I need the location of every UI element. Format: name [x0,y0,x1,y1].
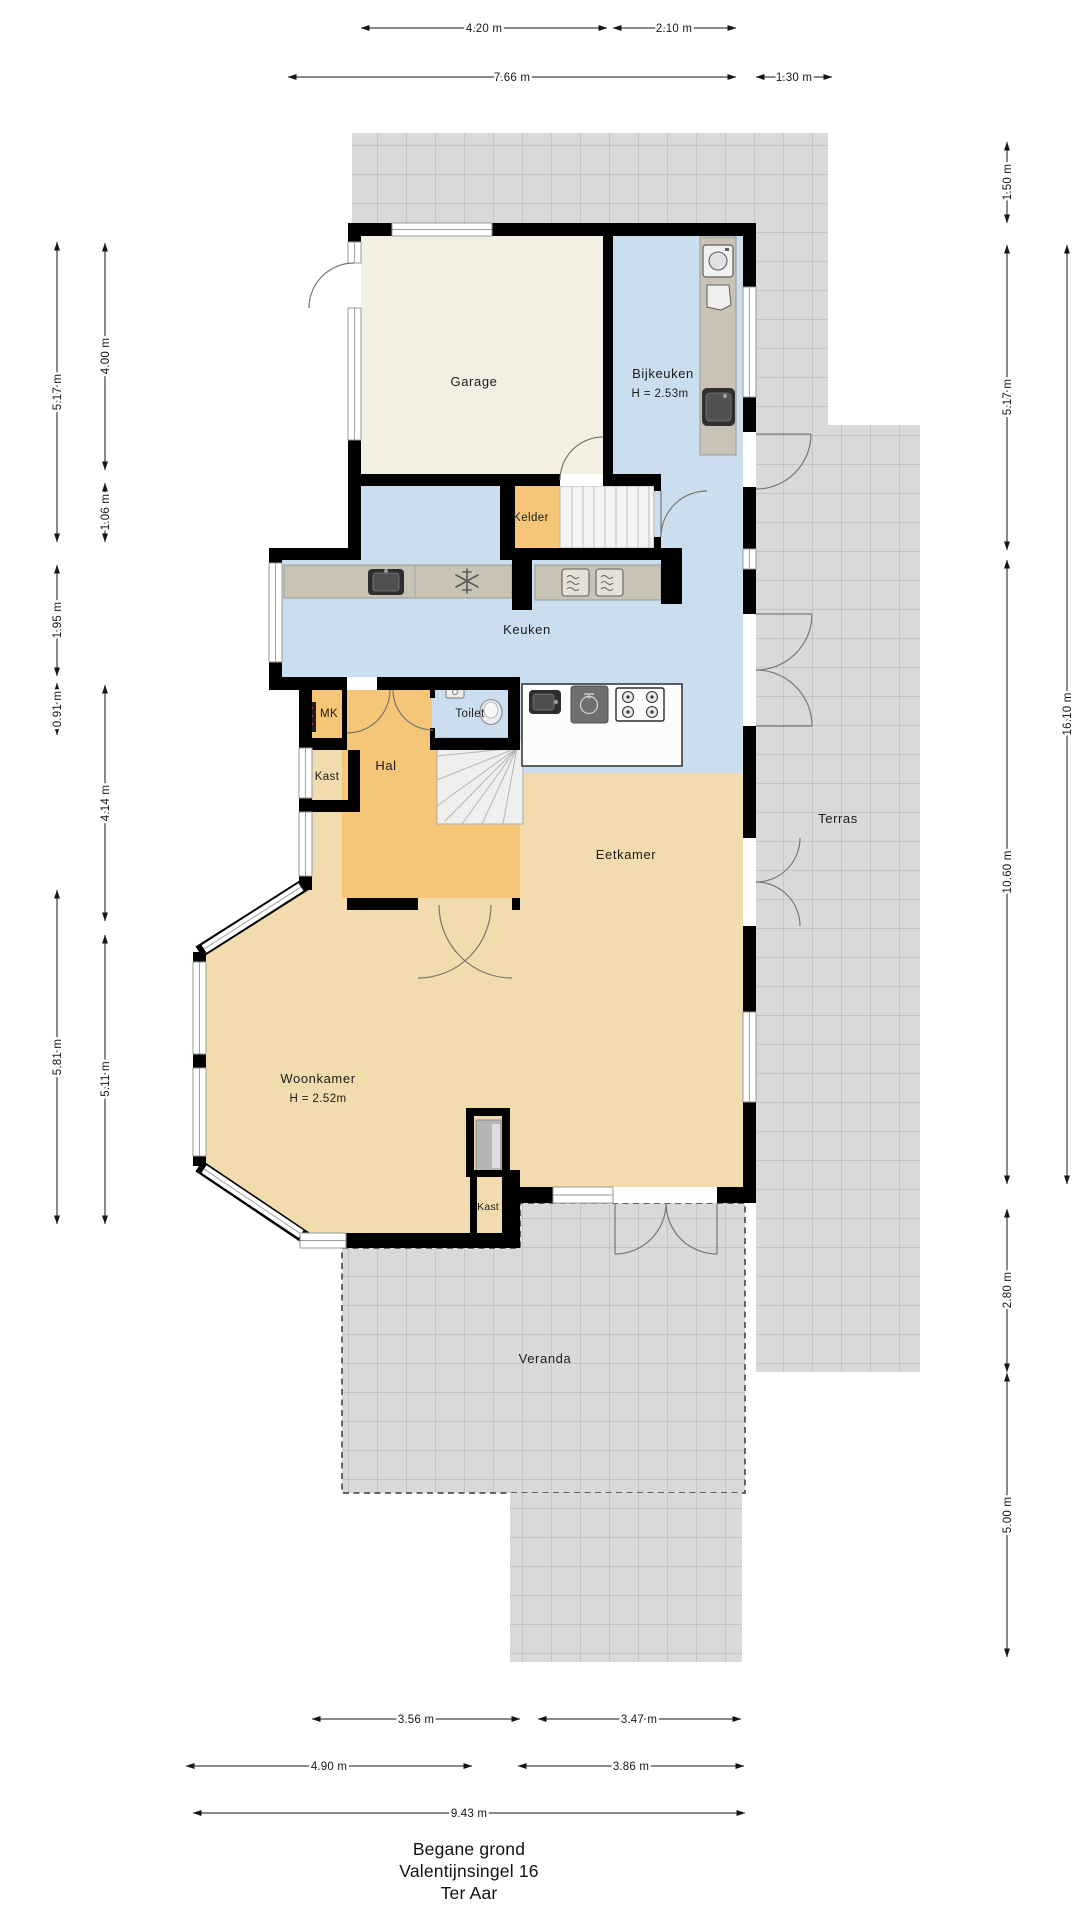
dim-label: 5.11 m [100,1061,112,1097]
city-title: Ter Aar [441,1883,498,1903]
tile-strip-north [352,133,756,225]
dim-label: 1.06 m [100,494,112,530]
kast-hal-label: Kast [315,771,340,783]
hal-label: Hal [375,758,396,773]
dim-label: 3.56 m [398,1714,434,1726]
bijkeuken-height-label: H = 2.53m [632,388,689,400]
terras-area [756,425,920,1372]
bijkeuken-label: Bijkeuken [632,366,694,381]
terras-label: Terras [818,811,858,826]
dim-label: 1.30 m [776,72,812,84]
tile-strip-east [756,133,828,425]
kast-woonkamer-label: Kast [477,1201,499,1213]
gas-hob-icon [616,688,664,721]
garage-floor [355,230,610,480]
floor-title: Begane grond [413,1839,525,1859]
window-bijkeuken-east [743,287,756,397]
dim-label: 2.10 m [656,23,692,35]
floor-plan-canvas: Garage Bijkeuken H = 2.53m Kelder Keuken… [0,0,1080,1920]
veranda-label: Veranda [519,1351,572,1366]
woonkamer-height-label: H = 2.52m [290,1093,347,1105]
dim-label: 1.50 m [1002,164,1014,200]
dishwasher-icon [571,686,608,723]
dim-label: 16.10 m [1062,693,1074,736]
window-woonkamer-west-upper [299,748,312,876]
floorplan-page: Garage Bijkeuken H = 2.53m Kelder Keuken… [0,0,1080,1920]
dim-label: 1.95 m [52,602,64,638]
window-woonkamer-south [300,1233,346,1248]
window-eetkamer-east [743,1012,756,1102]
eetkamer-label: Eetkamer [596,847,657,862]
dim-label: 3.86 m [613,1761,649,1773]
address-title: Valentijnsingel 16 [399,1861,538,1881]
toilet-label: Toilet [455,708,485,720]
window-keuken-east-small [743,549,756,569]
dim-label: 9.43 m [451,1808,487,1820]
dim-label: 5.81 m [52,1039,64,1075]
window-keuken-west [269,563,282,662]
dim-label: 10.60 m [1002,851,1014,894]
window-garage-front [392,223,492,236]
dim-label: 5.00 m [1002,1497,1014,1533]
dim-label: 7.66 m [494,72,530,84]
dim-label: 5.17 m [52,374,64,410]
oven-icon [596,569,623,596]
garage-label: Garage [451,374,498,389]
island-sink-icon [529,690,561,714]
dim-label: 5.17 m [1002,379,1014,415]
woonkamer-label: Woonkamer [280,1071,355,1086]
dim-label: 0.91 m [52,691,64,727]
dim-label: 4.00 m [100,338,112,374]
window-eetkamer-south [553,1187,613,1203]
washing-machine-icon [703,245,733,277]
kelder-label: Kelder [513,512,549,524]
dim-label: 4.90 m [311,1761,347,1773]
dim-label: 2.80 m [1002,1272,1014,1308]
dim-label: 3.47 m [621,1714,657,1726]
dim-label: 4.20 m [466,23,502,35]
tile-patch-south [510,1493,742,1662]
kelder-stairs [560,486,654,548]
laundry-basket-icon [707,285,731,310]
keuken-floor-upper [355,486,512,548]
mk-label: MK [320,708,338,720]
kitchen-sink-icon [368,569,404,595]
utility-sink-icon [702,388,735,426]
oven-icon [562,569,589,596]
keuken-label: Keuken [503,622,551,637]
dim-label: 4.14 m [100,785,112,821]
